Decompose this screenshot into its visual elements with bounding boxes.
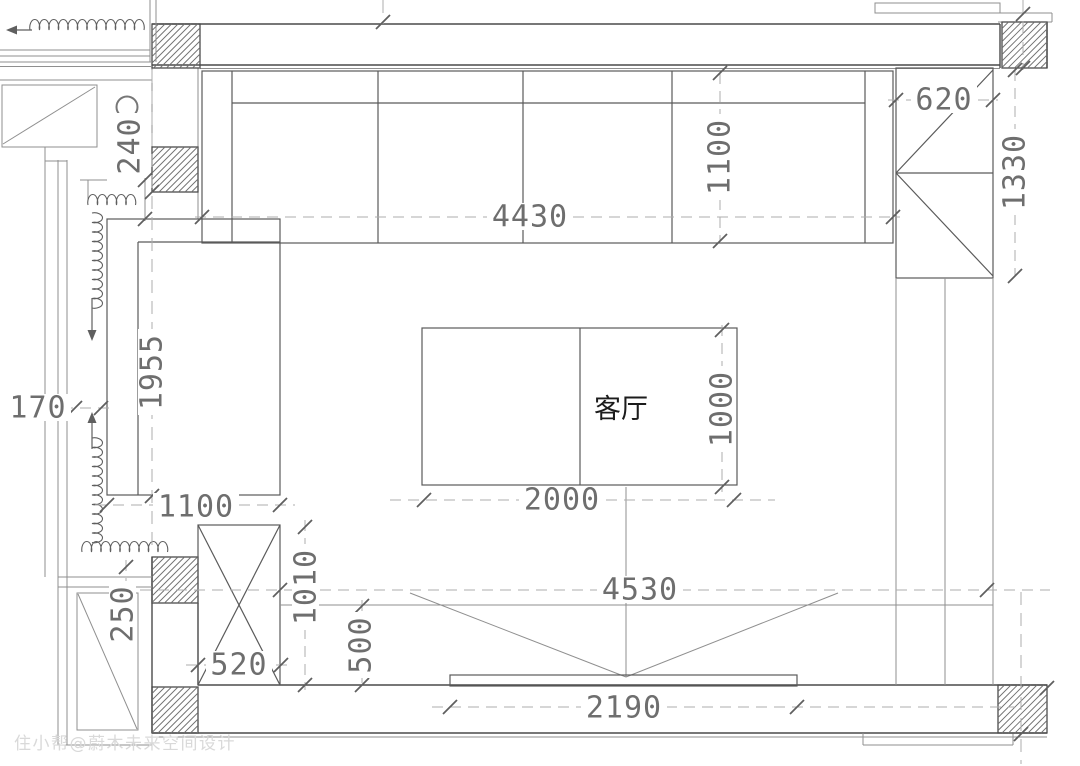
- curtain-left-upper: [92, 213, 102, 309]
- svg-text:1955: 1955: [135, 334, 170, 410]
- dim-table-length: 2000: [519, 483, 605, 518]
- svg-text:1000: 1000: [705, 371, 740, 447]
- balcony-cabinet-top: [2, 85, 97, 147]
- svg-text:1330: 1330: [998, 134, 1033, 210]
- dim-curtain-offset: 170: [5, 391, 71, 426]
- dim-sofa-length: 4430: [487, 200, 573, 235]
- curtain-arrow-left: [6, 26, 32, 35]
- svg-text:520: 520: [210, 648, 267, 683]
- dim-right-cabinet-width: 620: [911, 83, 977, 118]
- room-label: 客厅: [594, 394, 648, 425]
- curtain-corner: [88, 195, 136, 205]
- wall-hatch-bottom-right: [998, 685, 1047, 733]
- dim-left-cabinet-width: 520: [206, 648, 272, 683]
- curtain-top: [30, 20, 144, 30]
- svg-text:170: 170: [9, 391, 66, 426]
- svg-text:4530: 4530: [602, 573, 678, 608]
- dim-sofa-depth: 1100: [703, 114, 738, 200]
- dim-bay-width: 1100: [153, 490, 239, 525]
- curtains: [6, 20, 168, 552]
- svg-text:2190: 2190: [586, 691, 662, 726]
- dim-wall-offset: 240: [113, 113, 148, 179]
- svg-text:1010: 1010: [289, 549, 324, 625]
- dim-tv-wall-offset: 500: [344, 612, 379, 678]
- dim-right-cabinet-depth: 1330: [998, 129, 1033, 215]
- wall-hatch-bottom-left-upper: [152, 557, 198, 603]
- svg-text:1100: 1100: [158, 490, 234, 525]
- dim-room-length: 4530: [597, 573, 683, 608]
- living-room-floor-plan: 4430 1100 620 1330 240 1955 170 1100 250…: [0, 0, 1080, 766]
- tall-cabinet-right: [896, 68, 993, 685]
- curtain-arrow-down: [88, 298, 97, 341]
- wall-hatch-top-right: [1002, 22, 1047, 68]
- wall-hatch-top-left: [152, 24, 200, 68]
- coffee-table: [422, 328, 737, 485]
- wall-hatch-bottom-left-lower: [152, 687, 198, 733]
- dim-left-cabinet-depth: 1010: [289, 544, 324, 630]
- svg-text:240: 240: [113, 117, 148, 174]
- curtain-left-lower: [92, 438, 102, 543]
- svg-text:1100: 1100: [703, 119, 738, 195]
- svg-text:500: 500: [344, 616, 379, 673]
- svg-text:4430: 4430: [492, 200, 568, 235]
- bay-cabinet-left: [107, 219, 280, 495]
- floor-plan-canvas: 4430 1100 620 1330 240 1955 170 1100 250…: [0, 0, 1080, 766]
- watermark: 住小帮@蔚木未来空间设计: [14, 734, 236, 754]
- dimensions: 4430 1100 620 1330 240 1955 170 1100 250…: [5, 0, 1054, 764]
- svg-text:620: 620: [915, 83, 972, 118]
- svg-text:2000: 2000: [524, 483, 600, 518]
- dim-table-width: 1000: [705, 366, 740, 452]
- dim-balcony-ledge: 250: [106, 581, 141, 647]
- curtain-arrow-up: [88, 412, 97, 449]
- dim-console-length: 2190: [581, 691, 667, 726]
- dim-bay-length: 1955: [135, 329, 170, 415]
- svg-text:250: 250: [106, 585, 141, 642]
